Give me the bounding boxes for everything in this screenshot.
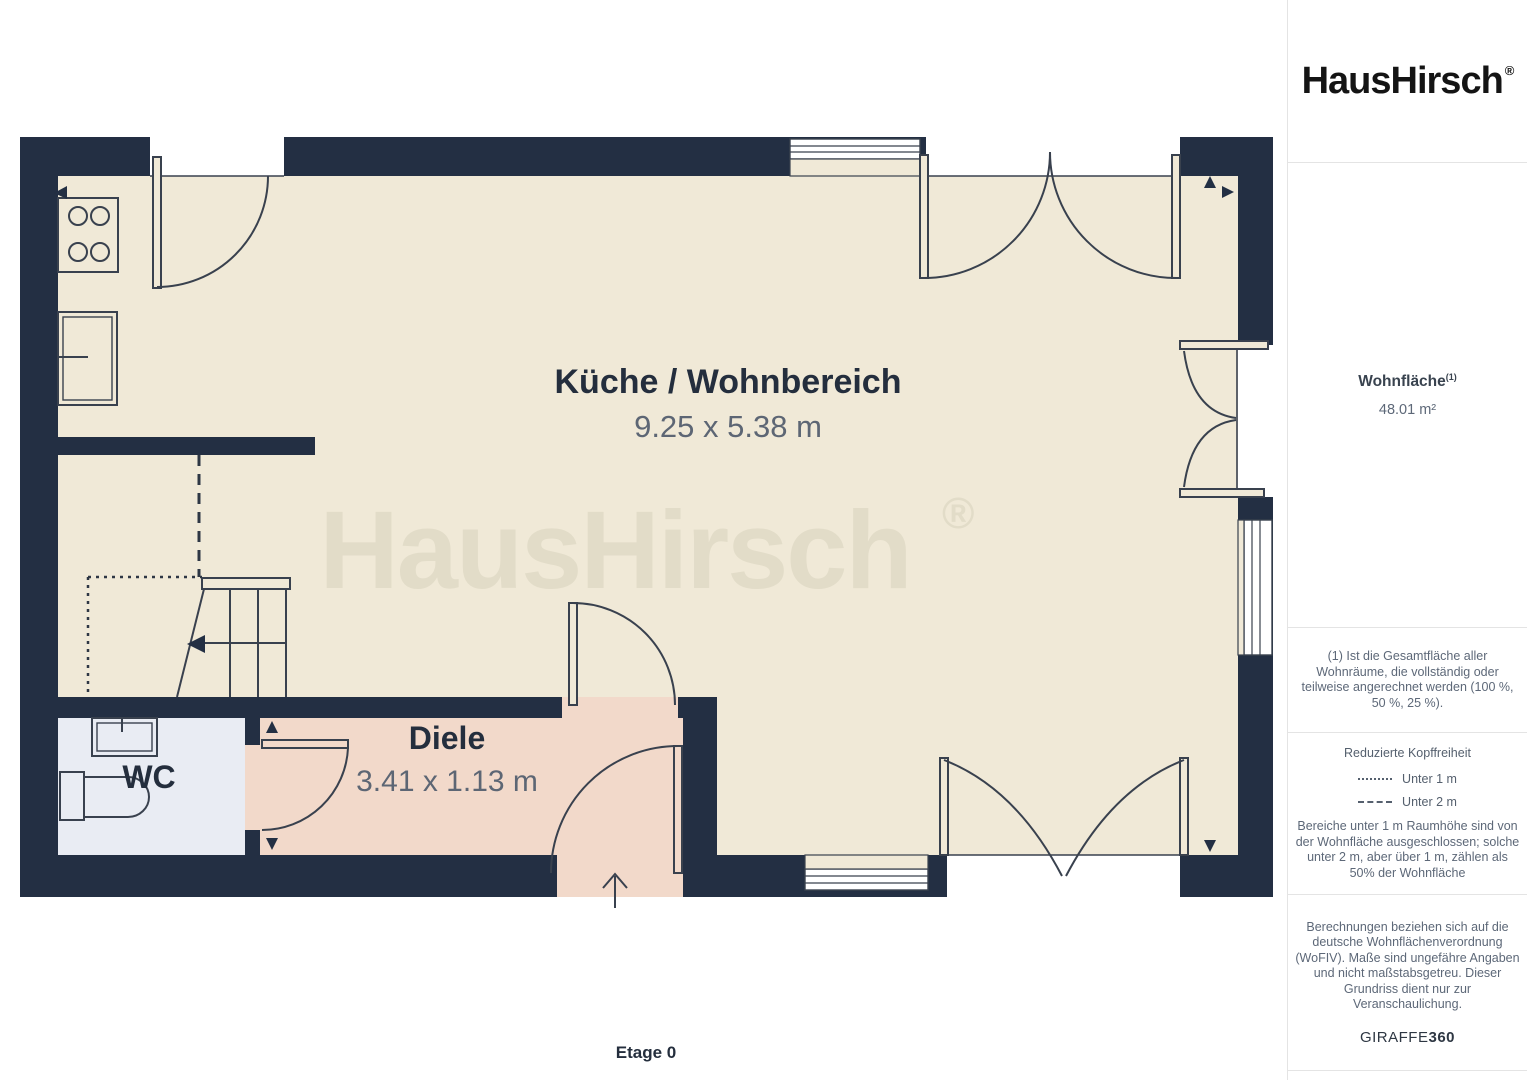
headroom-section: Reduzierte Kopffreiheit Unter 1 m Unter …: [1288, 733, 1527, 895]
room-name-hallway: Diele: [409, 720, 485, 756]
living-area-title: Wohnfläche: [1358, 373, 1446, 390]
legend-under-1m: Unter 1 m: [1358, 767, 1457, 790]
sidebar: HausHirsch® Wohnfläche(1) 48.01 m² (1) I…: [1287, 0, 1527, 1080]
watermark-registered-icon: ®: [942, 489, 974, 538]
kitchen-hall-passage: [562, 697, 678, 718]
window-right: [1238, 520, 1272, 655]
room-name-wc: WC: [122, 759, 175, 795]
legend-under-2m: Unter 2 m: [1358, 790, 1457, 813]
window-bottom: [805, 855, 928, 890]
logo-wordmark: HausHirsch: [1302, 60, 1503, 102]
disclaimer-text: Berechnungen beziehen sich auf die deuts…: [1294, 920, 1522, 1013]
living-area-value: 48.01 m²: [1379, 402, 1436, 418]
living-area-footnote-marker: (1): [1446, 372, 1457, 382]
wc-sink-icon: [92, 718, 157, 756]
giraffe360-number: 360: [1428, 1029, 1455, 1046]
headroom-note: Bereiche unter 1 m Raumhöhe sind von der…: [1294, 819, 1522, 881]
living-area-label: Wohnfläche(1): [1358, 372, 1457, 391]
headroom-title: Reduzierte Kopffreiheit: [1344, 746, 1471, 760]
floor-label: Etage 0: [616, 1043, 676, 1062]
stove-icon: [58, 198, 118, 272]
logo-text: HausHirsch®: [1302, 60, 1514, 103]
watermark: HausHirsch ®: [319, 489, 974, 612]
room-dim-kitchen-living: 9.25 x 5.38 m: [634, 409, 822, 444]
kitchen-appliance-icon: [58, 312, 117, 405]
legend-under-2m-label: Unter 2 m: [1402, 795, 1457, 809]
page: HausHirsch ®: [0, 0, 1527, 1080]
registered-icon: ®: [1505, 63, 1514, 78]
footnote-section: (1) Ist die Gesamtfläche aller Wohnräume…: [1288, 628, 1527, 733]
giraffe360-word: GIRAFFE: [1360, 1029, 1429, 1046]
watermark-text: HausHirsch: [319, 489, 910, 612]
dotted-line-icon: [1358, 778, 1392, 780]
entrance-recess: [557, 855, 683, 897]
living-area-section: Wohnfläche(1) 48.01 m²: [1288, 163, 1527, 628]
footnote-text: (1) Ist die Gesamtfläche aller Wohnräume…: [1294, 649, 1522, 711]
brand-logo: HausHirsch®: [1288, 0, 1527, 163]
floorplan-canvas: HausHirsch ®: [0, 0, 1287, 1080]
room-dim-hallway: 3.41 x 1.13 m: [356, 765, 538, 798]
dashed-line-icon: [1358, 801, 1392, 803]
room-name-kitchen-living: Küche / Wohnbereich: [555, 363, 902, 401]
legend-under-1m-label: Unter 1 m: [1402, 772, 1457, 786]
giraffe360-logo: GIRAFFE360: [1360, 1029, 1455, 1046]
disclaimer-section: Berechnungen beziehen sich auf die deuts…: [1288, 895, 1527, 1071]
window-top: [790, 139, 920, 176]
wc-door-passage: [245, 745, 260, 830]
